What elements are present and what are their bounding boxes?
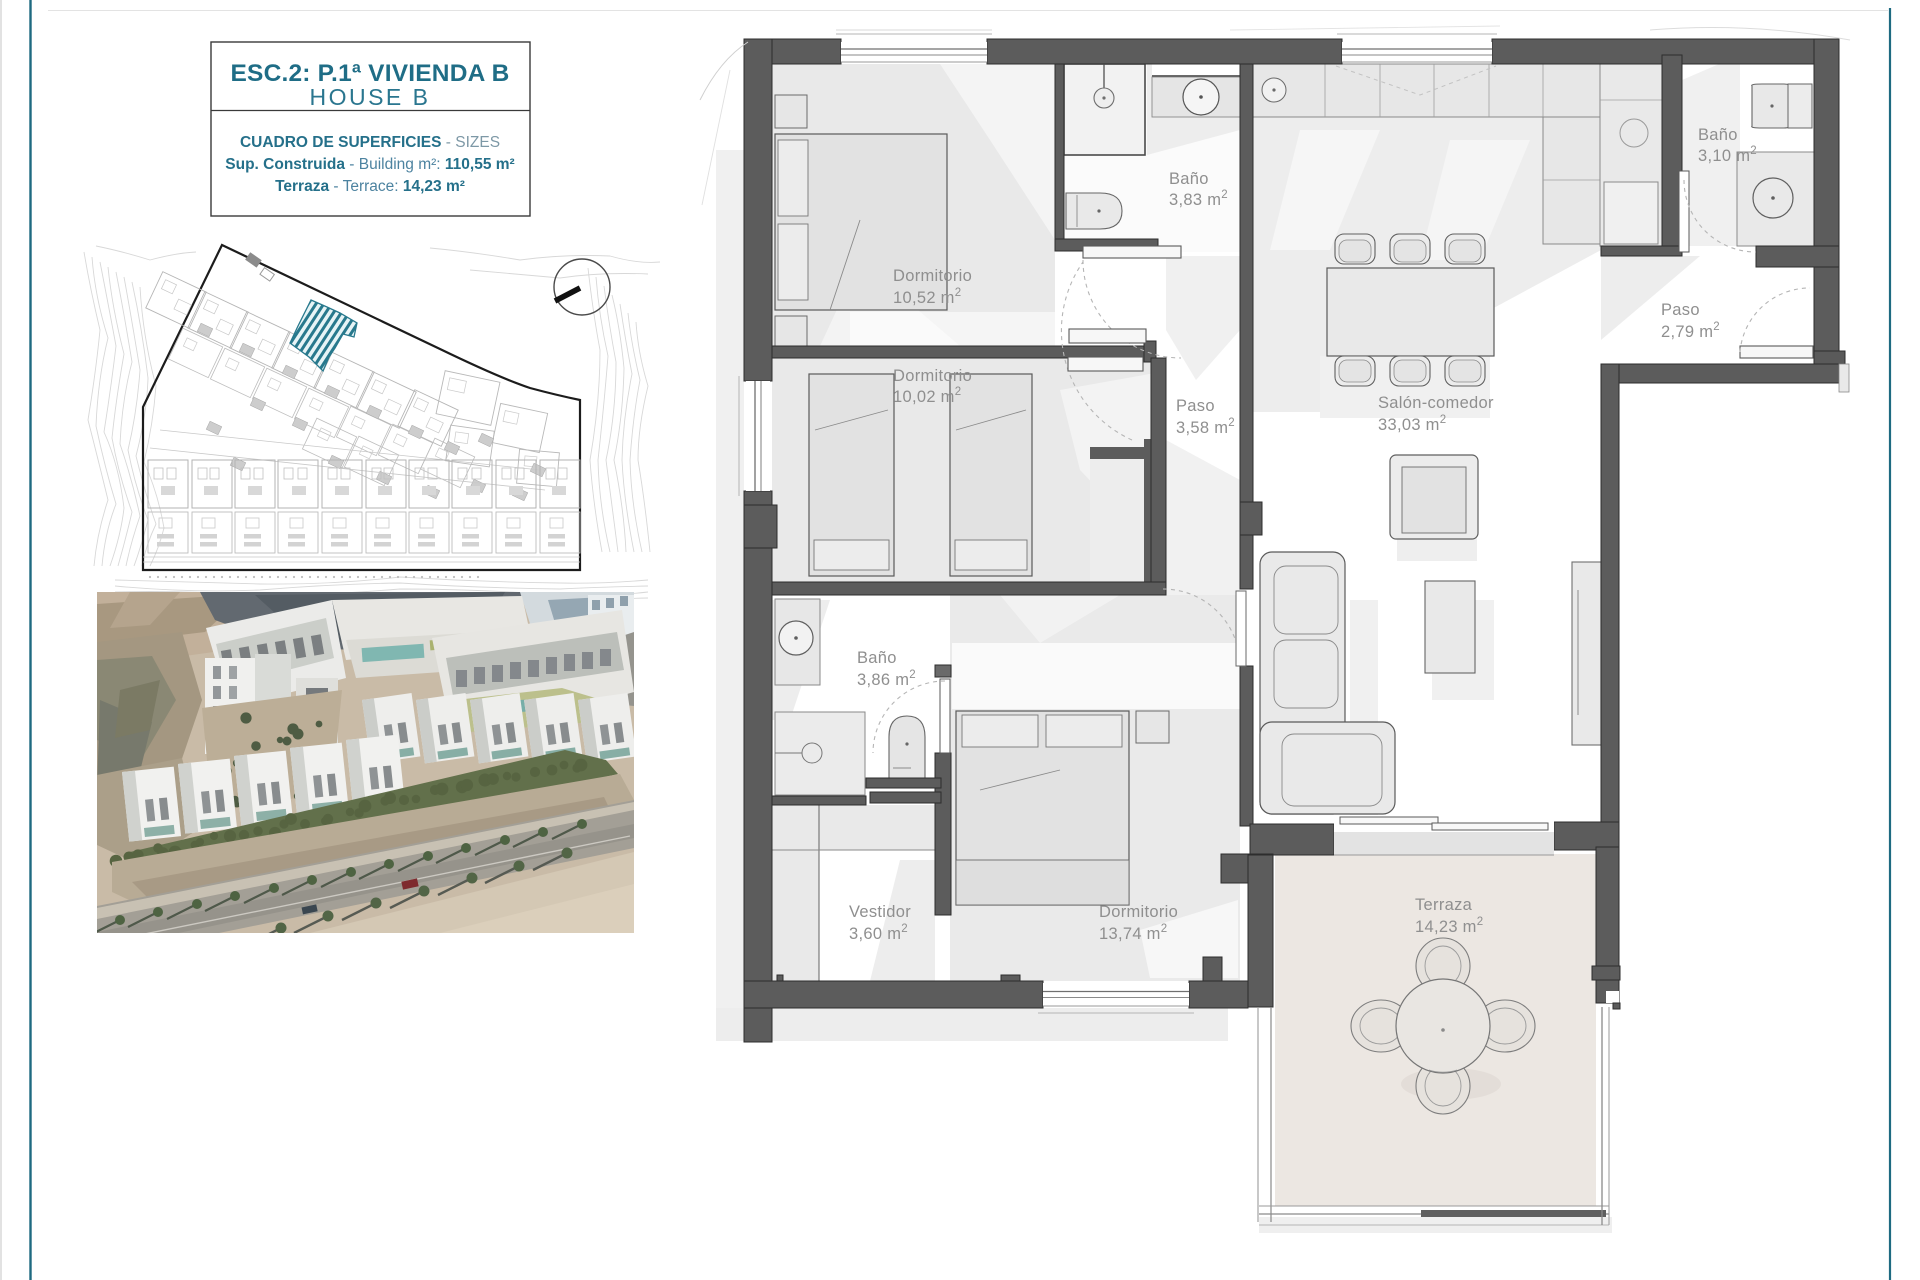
svg-text:Salón-comedor: Salón-comedor bbox=[1378, 394, 1494, 412]
svg-text:Dormitorio: Dormitorio bbox=[1099, 903, 1178, 921]
svg-text:3,10 m2: 3,10 m2 bbox=[1698, 145, 1757, 165]
svg-text:2,79 m2: 2,79 m2 bbox=[1661, 321, 1720, 341]
svg-text:Dormitorio: Dormitorio bbox=[893, 267, 972, 285]
svg-text:Vestidor: Vestidor bbox=[849, 903, 911, 921]
svg-text:Baño: Baño bbox=[1698, 126, 1738, 144]
svg-text:3,58 m2: 3,58 m2 bbox=[1176, 417, 1235, 437]
svg-text:Terraza: Terraza bbox=[1415, 896, 1473, 914]
svg-text:Paso: Paso bbox=[1661, 301, 1700, 319]
svg-text:3,86 m2: 3,86 m2 bbox=[857, 669, 916, 689]
svg-text:Baño: Baño bbox=[857, 649, 897, 667]
svg-text:Sup. Construida - Building m²:: Sup. Construida - Building m²: 110,55 m² bbox=[225, 156, 514, 173]
svg-text:Dormitorio: Dormitorio bbox=[893, 367, 972, 385]
svg-text:3,83 m2: 3,83 m2 bbox=[1169, 189, 1228, 209]
svg-text:14,23 m2: 14,23 m2 bbox=[1415, 916, 1483, 936]
svg-text:33,03 m2: 33,03 m2 bbox=[1378, 414, 1446, 434]
svg-text:10,02 m2: 10,02 m2 bbox=[893, 386, 961, 406]
svg-text:Baño: Baño bbox=[1169, 170, 1209, 188]
svg-text:13,74 m2: 13,74 m2 bbox=[1099, 923, 1167, 943]
svg-text:CUADRO DE SUPERFICIES - SIZES: CUADRO DE SUPERFICIES - SIZES bbox=[240, 134, 500, 151]
svg-text:HOUSE B: HOUSE B bbox=[309, 84, 430, 110]
svg-text:10,52 m2: 10,52 m2 bbox=[893, 287, 961, 307]
svg-text:3,60 m2: 3,60 m2 bbox=[849, 923, 908, 943]
svg-text:Paso: Paso bbox=[1176, 397, 1215, 415]
svg-text:Terraza - Terrace: 14,23 m²: Terraza - Terrace: 14,23 m² bbox=[275, 178, 465, 195]
svg-text:ESC.2: P.1ª VIVIENDA B: ESC.2: P.1ª VIVIENDA B bbox=[231, 60, 510, 87]
